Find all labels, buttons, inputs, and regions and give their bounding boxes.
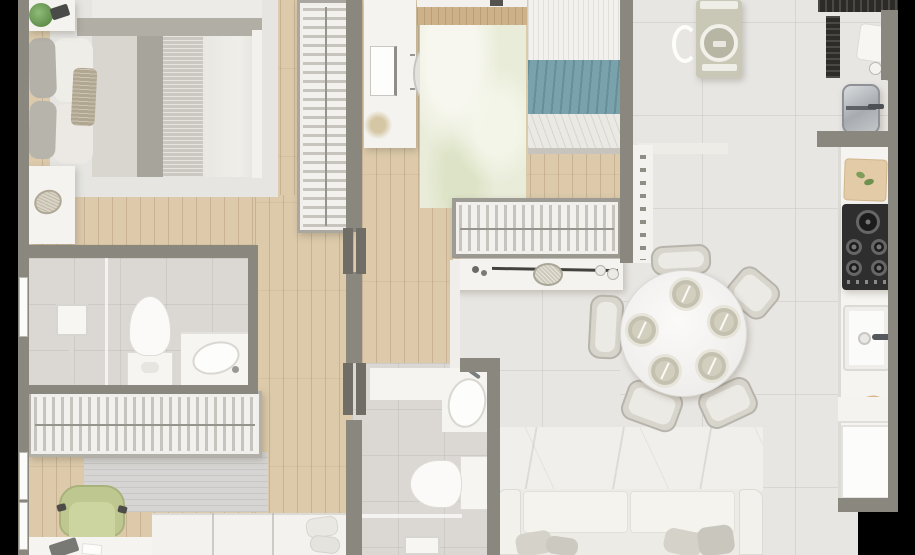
vanity1-faucet	[232, 366, 239, 373]
cooktop-knobs	[847, 280, 887, 284]
wall-hallway-mid	[346, 272, 362, 363]
bed1-duvet-textured-stripe	[163, 36, 203, 177]
window-office-1	[19, 452, 28, 500]
toilet1-button	[141, 362, 159, 373]
console-decor-dot-1	[472, 266, 479, 273]
bed1-gray-pillow-2	[28, 101, 57, 160]
shower-column	[56, 304, 88, 336]
monitor	[370, 46, 397, 96]
wall-bathroom1-bottom	[28, 385, 258, 394]
washer-label	[713, 41, 726, 47]
bed1-gray-pillow-1	[28, 38, 57, 99]
papers	[81, 543, 102, 555]
wall-service-horizontal	[817, 131, 898, 147]
bed1-footboard	[252, 30, 262, 178]
wall-bathroom1-right	[248, 258, 258, 390]
bed2-white-bedding	[528, 0, 620, 62]
toilet2-bowl	[410, 460, 462, 508]
wall-office-bathroom2	[346, 420, 362, 555]
shower-glass-partition	[105, 258, 108, 385]
threshold-strip	[450, 260, 460, 368]
burner-large	[856, 210, 880, 234]
bed2-foot-folds	[528, 114, 620, 148]
plate-3	[695, 349, 729, 383]
laundry-faucet	[868, 104, 884, 109]
dried-plant	[364, 110, 392, 140]
washer-bottom-bar	[702, 64, 737, 71]
desk-handle-1	[410, 54, 415, 56]
burner-3	[871, 239, 887, 255]
bedroom1-wardrobe	[297, 0, 352, 233]
office-wardrobe	[28, 391, 262, 457]
bed2-frame-edge	[528, 148, 620, 154]
door-jamb-3	[343, 363, 353, 415]
wall-bedroom1-bottom	[28, 245, 258, 258]
shower2-head	[404, 536, 440, 555]
jar-shelf-knobs	[640, 150, 646, 260]
bed1-duvet-gray-panel	[92, 36, 137, 177]
plate-1	[669, 277, 703, 311]
shelf-object	[490, 0, 503, 6]
plate-2	[707, 305, 741, 339]
window-office-2	[19, 502, 28, 550]
plant-icon	[29, 3, 53, 27]
background-right	[898, 0, 915, 555]
bedroom2-wardrobe	[452, 198, 622, 258]
bed1-top-bedding	[92, 0, 262, 18]
burner-4	[846, 260, 862, 276]
wall-kitchen-right	[888, 12, 898, 512]
shower-stem	[69, 336, 74, 376]
washer-control-panel	[700, 1, 738, 9]
wood-headband	[417, 7, 527, 25]
decor-bowl	[533, 263, 563, 286]
bed1-accent-pillow	[70, 67, 97, 126]
console-decor-dot-2	[481, 270, 487, 276]
glass-1	[595, 265, 606, 276]
bed3-seam-1	[212, 513, 214, 555]
door-jamb-1	[343, 228, 353, 274]
bench-top	[417, 0, 527, 7]
toilet1-bowl	[129, 296, 171, 356]
background-bottom-right	[858, 512, 915, 555]
bed1-duvet-dark-stripe	[137, 36, 163, 177]
plate-5	[625, 313, 659, 347]
bed2-teal-blanket	[528, 60, 620, 116]
drying-rack	[826, 16, 840, 78]
wall-bedroom2-right	[620, 0, 633, 263]
dining-chair-left	[587, 294, 624, 360]
burner-2	[846, 239, 862, 255]
bed3-seam-2	[272, 513, 274, 555]
glass-2	[607, 268, 619, 280]
sink-drain	[858, 332, 871, 345]
wall-kitchen-bottom	[838, 498, 906, 512]
bedroom2-rug	[420, 25, 526, 208]
bed1-fold-bar	[77, 18, 262, 36]
laundry-basket-handle	[672, 25, 698, 63]
shower2-glass	[362, 514, 462, 518]
throw-pillow-4	[696, 524, 736, 555]
door-jamb-2	[356, 228, 366, 274]
plate-4	[648, 354, 682, 388]
sofa-armrest-right	[739, 489, 763, 555]
burner-5	[871, 260, 887, 276]
living-marble-rug	[497, 427, 763, 491]
wall-bedroom1-bedroom2	[346, 0, 362, 232]
toilet2-tank	[460, 456, 488, 510]
window-bathroom1	[19, 277, 28, 337]
wall-bathroom2-right	[487, 363, 500, 555]
sofa-cushion-1	[523, 491, 628, 533]
floor-plan	[0, 0, 915, 555]
door-jamb-4	[356, 363, 366, 415]
